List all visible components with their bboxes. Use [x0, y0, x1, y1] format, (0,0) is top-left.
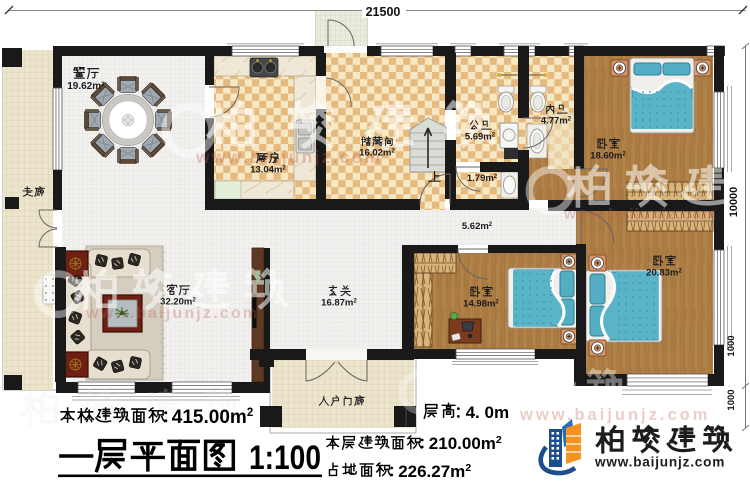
svg-text:5.62m2: 5.62m2	[462, 221, 493, 232]
svg-text:415.00m2: 415.00m2	[172, 407, 253, 428]
svg-text:32.20m2: 32.20m2	[160, 297, 196, 308]
svg-text:20.83m2: 20.83m2	[646, 268, 682, 279]
svg-text:210.00m2: 210.00m2	[429, 434, 502, 453]
svg-text:226.27m2: 226.27m2	[398, 462, 471, 481]
svg-text:10000: 10000	[728, 187, 740, 218]
svg-text:18.60m2: 18.60m2	[590, 151, 626, 162]
svg-text:14.98m2: 14.98m2	[463, 299, 499, 310]
svg-text:1000: 1000	[726, 335, 737, 356]
svg-text:www.baijunjz.com: www.baijunjz.com	[195, 147, 382, 167]
svg-text:1:100: 1:100	[249, 439, 321, 477]
svg-text:13.04m2: 13.04m2	[250, 165, 286, 176]
svg-text:www.baijunjz.com: www.baijunjz.com	[85, 305, 259, 322]
svg-text:www.baijunjz.com: www.baijunjz.com	[519, 406, 710, 424]
svg-text:16.02m2: 16.02m2	[359, 148, 395, 159]
svg-text:1000: 1000	[726, 389, 737, 410]
svg-text:19.62m2: 19.62m2	[67, 81, 105, 92]
svg-text:www.baijunjz.com: www.baijunjz.com	[563, 206, 717, 223]
svg-text:www.baijunjz.com: www.baijunjz.com	[594, 455, 725, 470]
svg-text:4.77m2: 4.77m2	[541, 116, 572, 127]
svg-text:1.79m2: 1.79m2	[467, 173, 498, 184]
svg-text:16.87m2: 16.87m2	[321, 298, 357, 309]
svg-text:21500: 21500	[366, 5, 401, 19]
svg-text:4. 0m: 4. 0m	[466, 403, 509, 422]
svg-text:5.69m2: 5.69m2	[465, 132, 496, 143]
